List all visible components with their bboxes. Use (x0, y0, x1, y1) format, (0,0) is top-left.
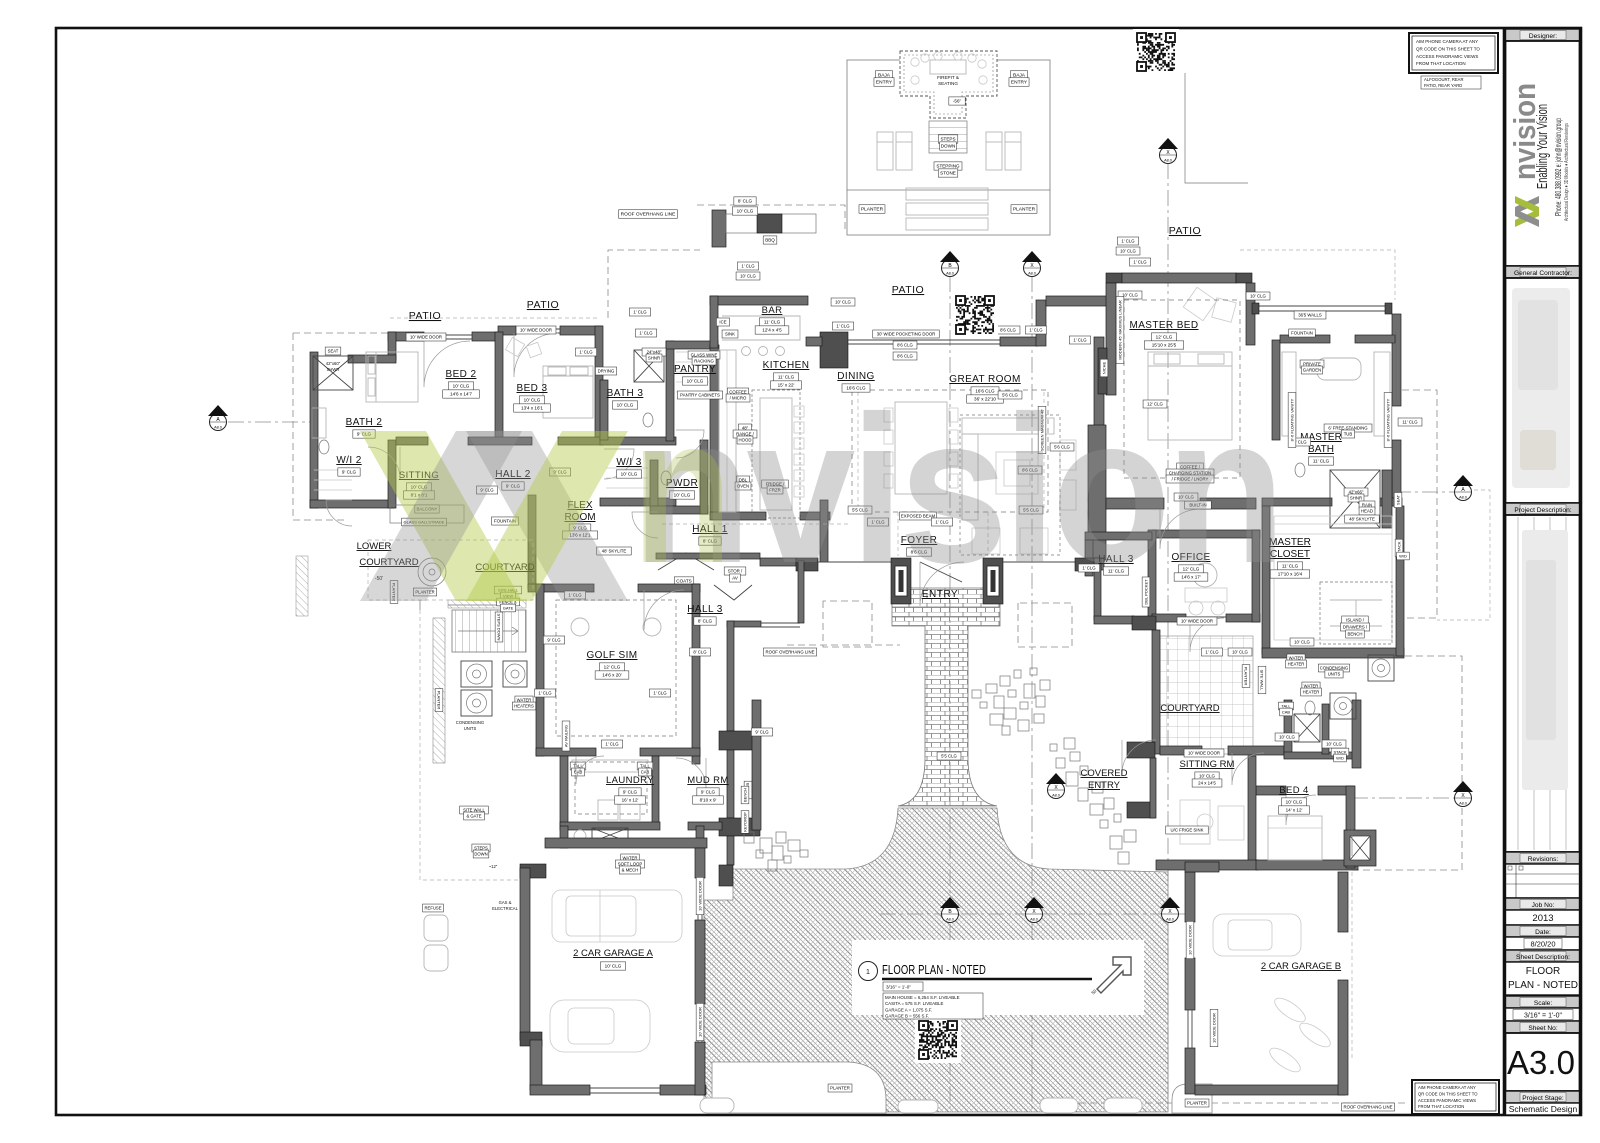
svg-text:STEPS DOWN: STEPS DOWN (497, 614, 502, 641)
svg-text:HEATER: HEATER (1288, 662, 1305, 667)
svg-text:COVERED: COVERED (1081, 768, 1128, 779)
svg-text:REFUSE: REFUSE (425, 906, 442, 911)
svg-text:AIM PHONE CAMERA AT ANY: AIM PHONE CAMERA AT ANY (1416, 39, 1478, 44)
svg-text:10' CLG: 10' CLG (453, 384, 470, 389)
svg-text:3/16" = 1'-0": 3/16" = 1'-0" (1524, 1013, 1563, 1020)
svg-text:SEAT: SEAT (1395, 494, 1400, 505)
svg-text:ROOF OVERHANG LINE: ROOF OVERHANG LINE (766, 650, 815, 655)
svg-text:1' CLG: 1' CLG (741, 264, 755, 269)
svg-text:UNITS: UNITS (1328, 672, 1341, 677)
svg-text:3/16" = 1'-0": 3/16" = 1'-0" (886, 985, 911, 990)
svg-text:ISLAND /: ISLAND / (1346, 618, 1365, 623)
svg-text:ALFOGOURT, REAR: ALFOGOURT, REAR (1424, 77, 1463, 82)
svg-text:BED 4: BED 4 (1279, 785, 1308, 796)
svg-text:PATIO: PATIO (1169, 225, 1201, 237)
svg-text:SHNR: SHNR (648, 356, 660, 361)
svg-text:WATER: WATER (1304, 684, 1319, 689)
svg-text:8' CLG: 8' CLG (698, 619, 713, 624)
svg-text:ENTRY: ENTRY (876, 80, 893, 86)
svg-text:BBQ: BBQ (765, 238, 775, 243)
svg-text:2 CAR GARAGE B: 2 CAR GARAGE B (1261, 961, 1341, 972)
svg-text:1' CLG: 1' CLG (1121, 239, 1135, 244)
svg-text:W/D: W/D (1399, 553, 1407, 558)
svg-text:Project Stage:: Project Stage: (1522, 1095, 1564, 1102)
svg-text:BED 3: BED 3 (517, 383, 548, 394)
svg-text:PLANTER: PLANTER (830, 1086, 850, 1091)
svg-text:Sheet Description:: Sheet Description: (1516, 954, 1570, 961)
svg-text:9' CLG: 9' CLG (547, 638, 561, 643)
svg-text:12'4 x 4'5: 12'4 x 4'5 (762, 328, 782, 333)
svg-text:DRAWERS /: DRAWERS / (1343, 625, 1368, 630)
svg-text:SITTING RM: SITTING RM (1180, 759, 1235, 770)
svg-text:AIM PHONE CAMERA AT ANY: AIM PHONE CAMERA AT ANY (1418, 1085, 1476, 1090)
svg-text:A8.0: A8.0 (1459, 802, 1467, 806)
svg-text:1' CLG: 1' CLG (1133, 260, 1147, 265)
svg-text:STACK: STACK (1333, 749, 1346, 754)
svg-text:Phone: 480.388.0992 e: jo: Phone: 480.388.0992 e: john@nvision.grou… (1554, 118, 1563, 216)
svg-text:SITE WALL: SITE WALL (463, 808, 485, 813)
svg-text:ROOF OVERHANG LINE: ROOF OVERHANG LINE (1344, 1105, 1393, 1110)
svg-text:LAUNDRY: LAUNDRY (606, 775, 654, 786)
svg-text:10' CLG: 10' CLG (1232, 650, 1248, 655)
svg-text:Date:: Date: (1535, 929, 1551, 936)
svg-text:17'10 x 16'4: 17'10 x 16'4 (1278, 572, 1303, 577)
svg-text:Scale:: Scale: (1534, 1000, 1552, 1007)
svg-text:CASITA = 575 S.F. LIVEABLE: CASITA = 575 S.F. LIVEABLE (885, 1001, 943, 1006)
svg-text:8/20/20: 8/20/20 (1530, 940, 1555, 949)
svg-text:1' CLG: 1' CLG (1205, 650, 1219, 655)
svg-text:9' CLG: 9' CLG (342, 470, 357, 475)
svg-text:10' CLG: 10' CLG (740, 274, 756, 279)
svg-text:10' CLG: 10' CLG (1120, 249, 1136, 254)
svg-text:ENTRY: ENTRY (1011, 80, 1028, 86)
svg-text:GOLF SIM: GOLF SIM (587, 650, 638, 661)
svg-text:10' CLG: 10' CLG (835, 300, 851, 305)
svg-text:PATIO: PATIO (892, 284, 924, 296)
svg-text:KEYDROP: KEYDROP (742, 812, 747, 832)
svg-text:8'6 CLG: 8'6 CLG (897, 354, 913, 359)
svg-text:11' CLG: 11' CLG (1313, 459, 1330, 464)
svg-text:Designer:: Designer: (1529, 33, 1557, 40)
svg-text:~12": ~12" (489, 864, 498, 869)
svg-text:U/C FRIGE SINK: U/C FRIGE SINK (1171, 828, 1204, 833)
svg-text:8'6 CLG: 8'6 CLG (1000, 328, 1016, 333)
svg-text:Schematic Design: Schematic Design (1509, 1104, 1578, 1114)
svg-text:UNITS: UNITS (464, 726, 477, 731)
svg-text:GAS &: GAS & (499, 900, 512, 905)
svg-text:W/D: W/D (1336, 755, 1344, 760)
svg-text:10' WIDE DOOR: 10' WIDE DOOR (410, 335, 442, 340)
svg-text:10' CLG: 10' CLG (737, 209, 754, 214)
svg-text:1' CLG: 1' CLG (639, 331, 653, 336)
svg-text:W/I 2: W/I 2 (336, 455, 361, 466)
svg-text:GARAGE B = 556 S.F.: GARAGE B = 556 S.F. (885, 1014, 929, 1019)
svg-text:PATIO: PATIO (409, 310, 441, 322)
svg-text:1' CLG: 1' CLG (836, 324, 850, 329)
svg-text:10' WIDE DOOR: 10' WIDE DOOR (1211, 1013, 1216, 1043)
svg-text:5'5 CLG: 5'5 CLG (941, 754, 957, 759)
svg-text:STEPPING: STEPPING (936, 164, 960, 169)
svg-text:RACKING: RACKING (694, 359, 714, 364)
svg-text:9' CLG: 9' CLG (701, 790, 716, 795)
svg-text:8'-6 FLOATING VANITY: 8'-6 FLOATING VANITY (1385, 398, 1390, 441)
svg-text:Project Description:: Project Description: (1514, 507, 1571, 514)
svg-text:10' CLG: 10' CLG (1199, 774, 1216, 779)
svg-text:48' SKYLYTE: 48' SKYLYTE (1349, 517, 1375, 522)
svg-text:Job No:: Job No: (1532, 902, 1555, 909)
svg-text:TALL: TALL (1281, 703, 1291, 708)
svg-text:10' CLG: 10' CLG (1122, 293, 1138, 298)
svg-text:HEATER: HEATER (1303, 690, 1320, 695)
svg-text:GATE: GATE (503, 605, 514, 610)
svg-text:FROM THAT LOCATION: FROM THAT LOCATION (1418, 1104, 1464, 1109)
svg-text:24 x 14'5: 24 x 14'5 (1198, 781, 1216, 786)
svg-text:BAR: BAR (762, 305, 783, 316)
svg-text:FIREPIT &: FIREPIT & (937, 75, 959, 80)
svg-text:10' WIDE DOOR: 10' WIDE DOOR (1181, 619, 1213, 624)
svg-text:FOUNTAIN: FOUNTAIN (1291, 331, 1313, 336)
svg-text:SHNR: SHNR (1350, 496, 1362, 501)
svg-text:8'-6 FLOATING VANITY: 8'-6 FLOATING VANITY (1289, 398, 1294, 441)
svg-text:1' CLG: 1' CLG (605, 742, 619, 747)
svg-text:Enabling Your Vision: Enabling Your Vision (1535, 104, 1551, 189)
svg-text:STEPS: STEPS (940, 137, 955, 142)
svg-text:CAB: CAB (641, 770, 650, 775)
svg-text:AV RAILING: AV RAILING (563, 725, 568, 747)
svg-text:9' CLG: 9' CLG (623, 790, 638, 795)
svg-text:A8.0: A8.0 (214, 426, 222, 430)
svg-text:1: 1 (866, 969, 870, 976)
svg-text:PLAN - NOTED: PLAN - NOTED (1508, 980, 1578, 991)
svg-text:GARAGE A = 1,075 S.F.: GARAGE A = 1,075 S.F. (885, 1007, 932, 1012)
svg-text:GARDEN: GARDEN (1303, 368, 1321, 373)
svg-text:14'6 x 20': 14'6 x 20' (602, 673, 622, 678)
svg-text:MASTER BED: MASTER BED (1129, 320, 1198, 331)
svg-text:A8.0: A8.0 (946, 918, 954, 922)
svg-text:1' CLG: 1' CLG (633, 310, 647, 315)
svg-text:PATIO, REAR YARD: PATIO, REAR YARD (1424, 83, 1462, 88)
svg-text:42"x60": 42"x60" (326, 361, 341, 366)
svg-text:SHWR: SHWR (327, 367, 340, 372)
svg-text:CAB: CAB (1282, 709, 1291, 714)
svg-text:PLANTER: PLANTER (1244, 667, 1249, 686)
svg-text:A8.0: A8.0 (1030, 918, 1038, 922)
svg-text:SITE WALL: SITE WALL (1260, 670, 1265, 692)
svg-text:8' CLG: 8' CLG (693, 650, 707, 655)
svg-text:12' CLG: 12' CLG (1156, 335, 1173, 340)
svg-text:Sheet No:: Sheet No: (1528, 1025, 1557, 1032)
svg-text:CONDENSING: CONDENSING (456, 720, 484, 725)
svg-text:12' CLG: 12' CLG (604, 665, 621, 670)
svg-text:11' CLG: 11' CLG (764, 320, 781, 325)
svg-text:SEATING: SEATING (938, 81, 958, 86)
svg-text:LOWER: LOWER (357, 541, 392, 552)
svg-text:10' CLG: 10' CLG (1250, 294, 1266, 299)
svg-text:FLOOR: FLOOR (1526, 966, 1560, 977)
svg-text:1' CLG: 1' CLG (1029, 328, 1043, 333)
svg-text:SINK: SINK (725, 332, 735, 337)
svg-text:PATIO: PATIO (527, 299, 559, 311)
svg-text:BENCH: BENCH (1347, 632, 1362, 637)
svg-text:TUB: TUB (1344, 432, 1353, 437)
svg-text:A3.0: A3.0 (1507, 1044, 1575, 1081)
svg-text:DRYING: DRYING (598, 369, 615, 374)
svg-text:DOWN: DOWN (941, 144, 956, 149)
svg-text:PLANTER: PLANTER (437, 691, 442, 710)
svg-text:STEPS: STEPS (474, 846, 488, 851)
svg-text:8'6 CLG: 8'6 CLG (897, 343, 913, 348)
svg-text:16' x 12': 16' x 12' (622, 798, 639, 803)
svg-text:WATER: WATER (1289, 656, 1304, 661)
svg-text:BATH 2: BATH 2 (346, 417, 383, 428)
svg-text:1' CLG: 1' CLG (538, 691, 552, 696)
svg-text:-56": -56" (953, 99, 962, 104)
svg-text:BENCH: BENCH (742, 788, 747, 802)
svg-text:10' WIDE DOOR: 10' WIDE DOOR (697, 881, 702, 911)
svg-text:ROOF OVERHANG LINE: ROOF OVERHANG LINE (621, 212, 676, 218)
svg-text:48' SKYLITE: 48' SKYLITE (602, 549, 627, 554)
svg-text:DOWN: DOWN (474, 852, 487, 857)
svg-text:11' CLG: 11' CLG (1402, 420, 1418, 425)
svg-text:10' CLG: 10' CLG (1326, 742, 1342, 747)
svg-text:8' CLG: 8' CLG (738, 199, 753, 204)
svg-text:A8.0: A8.0 (946, 272, 954, 276)
svg-text:1' CLG: 1' CLG (653, 691, 667, 696)
svg-text:2 CAR GARAGE A: 2 CAR GARAGE A (573, 948, 653, 959)
svg-text:& MECH: & MECH (622, 868, 639, 873)
svg-text:A8.0: A8.0 (1028, 272, 1036, 276)
svg-text:HEATERS: HEATERS (514, 704, 534, 709)
svg-text:10' CLG: 10' CLG (605, 964, 622, 969)
svg-text:ACCESS PANORAMIC VIEWS: ACCESS PANORAMIC VIEWS (1416, 54, 1478, 59)
svg-text:10' WIDE DOOR: 10' WIDE DOOR (520, 328, 552, 333)
svg-text:STONE: STONE (940, 171, 956, 176)
svg-text:TALL: TALL (640, 764, 650, 769)
svg-text:ICE: ICE (719, 320, 726, 325)
svg-text:WATER: WATER (517, 698, 532, 703)
svg-text:A8.0: A8.0 (1052, 794, 1060, 798)
svg-text:10' CLG: 10' CLG (1279, 735, 1295, 740)
svg-text:n: n (632, 372, 732, 607)
svg-text:FROM THAT LOCATION: FROM THAT LOCATION (1416, 61, 1466, 66)
svg-text:ENTRY: ENTRY (1088, 780, 1121, 791)
svg-text:MODERN 45' MAXIMUS LINEAR: MODERN 45' MAXIMUS LINEAR (1117, 300, 1122, 360)
svg-text:BATH: BATH (1308, 444, 1334, 455)
svg-text:13'4 x 16'1: 13'4 x 16'1 (521, 406, 543, 411)
svg-text:KITCHEN: KITCHEN (763, 360, 810, 371)
svg-text:10' CLG: 10' CLG (1294, 640, 1310, 645)
svg-text:Architectural Design ● 3D Mode: Architectural Design ● 3D Models ● Archi… (1564, 123, 1570, 221)
svg-text:COURTYARD: COURTYARD (1160, 703, 1219, 714)
svg-text:FLOOR PLAN - NOTED: FLOOR PLAN - NOTED (882, 962, 986, 977)
svg-text:HEAD: HEAD (1361, 509, 1373, 514)
svg-text:CONDENSING: CONDENSING (1320, 666, 1348, 671)
svg-text:A8.0: A8.0 (1164, 159, 1172, 163)
svg-text:MUD RM: MUD RM (687, 775, 728, 786)
svg-text:8'10 x 9': 8'10 x 9' (700, 798, 717, 803)
svg-text:General Contractor:: General Contractor: (1514, 270, 1572, 277)
svg-text:PLANTER: PLANTER (861, 207, 884, 213)
svg-text:A8.0: A8.0 (1459, 496, 1467, 500)
svg-text:1' CLG: 1' CLG (579, 350, 593, 355)
svg-text:SEAT: SEAT (328, 349, 339, 354)
svg-text:10' WIDE DOOR: 10' WIDE DOOR (697, 1007, 702, 1037)
svg-text:1' CLG: 1' CLG (1073, 338, 1087, 343)
svg-text:9' CLG: 9' CLG (755, 730, 769, 735)
svg-text:ELECTRICAL: ELECTRICAL (492, 906, 519, 911)
svg-text:30' WIDE POCKETING DOOR: 30' WIDE POCKETING DOOR (877, 332, 936, 337)
svg-text:10' CLG: 10' CLG (1286, 800, 1303, 805)
svg-text:15'10 x 25'5: 15'10 x 25'5 (1152, 343, 1177, 348)
svg-text:Revisions:: Revisions: (1528, 856, 1559, 863)
svg-text:QR CODE ON THIS SHEET TO: QR CODE ON THIS SHEET TO (1418, 1091, 1478, 1096)
svg-text:11' CLG: 11' CLG (1282, 564, 1299, 569)
svg-text:PLANTER: PLANTER (1187, 1101, 1207, 1106)
svg-text:14'6 x 14'7: 14'6 x 14'7 (450, 392, 472, 397)
svg-text:10' WIDE DOOR: 10' WIDE DOOR (1187, 925, 1192, 955)
svg-text:A8.0: A8.0 (1166, 918, 1174, 922)
svg-text:MAIN HOUSE = 6,254 S.F. LIVEAB: MAIN HOUSE = 6,254 S.F. LIVEABLE (885, 995, 960, 1000)
svg-text:& GATE: & GATE (466, 814, 481, 819)
svg-text:14' x 12': 14' x 12' (1286, 808, 1303, 813)
svg-text:ACCESS PANORAMIC VIEWS: ACCESS PANORAMIC VIEWS (1418, 1098, 1476, 1103)
svg-text:QR CODE ON THIS SHEET TO: QR CODE ON THIS SHEET TO (1416, 46, 1480, 51)
svg-text:10' CLG: 10' CLG (524, 398, 541, 403)
svg-text:36'5 WALLS: 36'5 WALLS (1298, 313, 1322, 318)
svg-text:10' WIDE DOOR: 10' WIDE DOOR (1188, 751, 1220, 756)
svg-text:BED 2: BED 2 (446, 369, 477, 380)
svg-text:2013: 2013 (1532, 913, 1553, 924)
svg-text:PLANTER: PLANTER (1013, 207, 1036, 213)
